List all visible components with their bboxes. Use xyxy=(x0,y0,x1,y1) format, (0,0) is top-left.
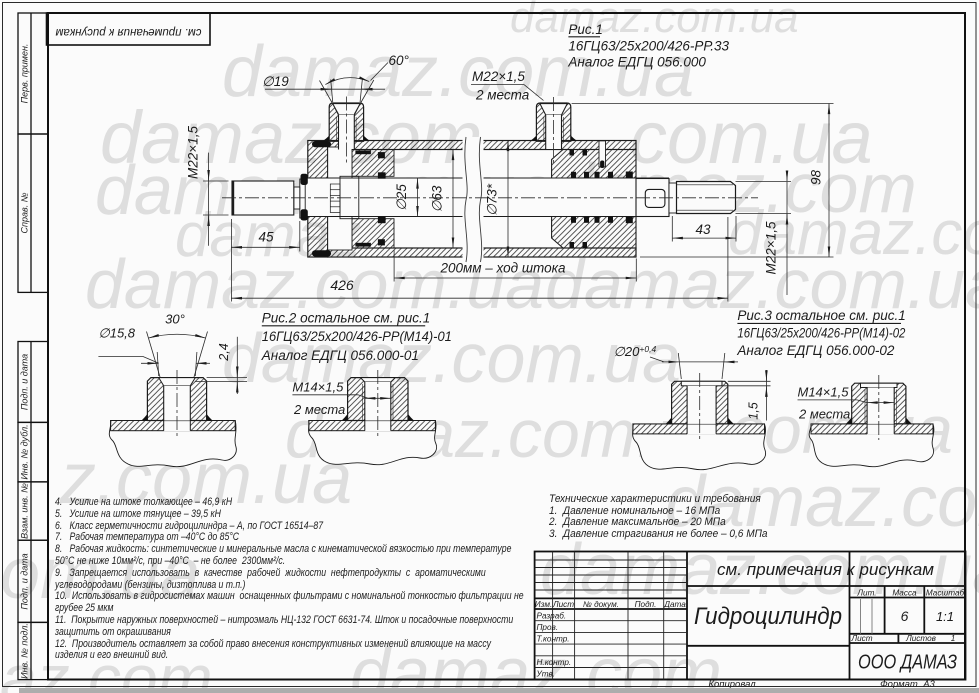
svg-text:Пров.: Пров. xyxy=(537,623,559,632)
svg-text:Лист: Лист xyxy=(552,600,574,609)
svg-text:Дата: Дата xyxy=(663,600,686,609)
svg-text:Аналог ЕДГЦ 056.000-01: Аналог ЕДГЦ 056.000-01 xyxy=(261,348,419,363)
svg-text:Взам. инв. №: Взам. инв. № xyxy=(20,483,30,539)
svg-text:∅73*: ∅73* xyxy=(485,183,500,216)
svg-text:M22×1,5: M22×1,5 xyxy=(186,126,201,179)
svg-text:2 места: 2 места xyxy=(475,88,530,103)
svg-text:см. примечания к рисункам: см. примечания к рисункам xyxy=(55,26,201,38)
svg-text:Утв.: Утв. xyxy=(536,670,556,679)
svg-text:Перв. примен.: Перв. примен. xyxy=(20,44,30,104)
svg-text:Подп.: Подп. xyxy=(635,600,657,609)
svg-text:M14×1,5: M14×1,5 xyxy=(292,380,344,395)
svg-text:Аналог ЕДГЦ 056.000: Аналог ЕДГЦ 056.000 xyxy=(567,55,706,70)
svg-text:16ГЦ63/25х200/426-РР(М14)-02: 16ГЦ63/25х200/426-РР(М14)-02 xyxy=(737,326,905,341)
svg-text:60°: 60° xyxy=(389,53,410,68)
svg-text:№ докум.: № докум. xyxy=(583,600,619,609)
svg-text:2 места: 2 места xyxy=(798,407,850,422)
svg-text:∅20+0,4: ∅20+0,4 xyxy=(614,344,657,359)
svg-text:Масса: Масса xyxy=(892,589,917,598)
svg-text:ООО ДАМАЗ: ООО ДАМАЗ xyxy=(858,652,957,674)
svg-text:Лист: Лист xyxy=(850,634,872,643)
svg-text:M22×1,5: M22×1,5 xyxy=(764,221,779,274)
svg-text:43: 43 xyxy=(695,222,711,237)
svg-text:16ГЦ63/25х200/426-РР(М14)-01: 16ГЦ63/25х200/426-РР(М14)-01 xyxy=(262,329,452,344)
svg-text:2 места: 2 места xyxy=(293,402,345,417)
svg-text:Лит.: Лит. xyxy=(856,589,876,598)
svg-text:1:1: 1:1 xyxy=(936,609,954,624)
svg-text:см. примечания к рисункам: см. примечания к рисункам xyxy=(717,560,934,579)
svg-text:Инв. № дубл.: Инв. № дубл. xyxy=(20,424,30,479)
svg-text:Т.контр.: Т.контр. xyxy=(537,635,570,644)
svg-text:Н.контр.: Н.контр. xyxy=(537,658,572,667)
svg-text:Рис.3 остальное см. рис.1: Рис.3 остальное см. рис.1 xyxy=(737,308,905,323)
svg-text:Подп. и дата: Подп. и дата xyxy=(20,553,30,609)
svg-text:Гидроцилиндр: Гидроцилиндр xyxy=(694,603,842,630)
svg-text:16ГЦ63/25х200/426-РР.33: 16ГЦ63/25х200/426-РР.33 xyxy=(568,39,729,54)
svg-text:Инв. № подл.: Инв. № подл. xyxy=(20,623,30,679)
svg-text:30°: 30° xyxy=(165,312,185,327)
svg-text:Разраб.: Разраб. xyxy=(537,612,567,621)
svg-text:∅63: ∅63 xyxy=(430,185,445,212)
svg-text:∅25: ∅25 xyxy=(394,184,409,211)
svg-text:M22×1,5: M22×1,5 xyxy=(472,69,525,84)
svg-text:200мм – ход штока: 200мм – ход штока xyxy=(439,261,566,276)
svg-text:∅19: ∅19 xyxy=(262,74,289,89)
svg-text:Масштаб: Масштаб xyxy=(926,589,965,598)
svg-text:Рис.1: Рис.1 xyxy=(568,22,603,37)
svg-text:Справ. №: Справ. № xyxy=(20,192,30,233)
svg-text:426: 426 xyxy=(330,277,354,293)
svg-text:∅15,8: ∅15,8 xyxy=(98,326,135,341)
svg-text:6: 6 xyxy=(901,608,909,624)
svg-text:98: 98 xyxy=(809,170,824,186)
svg-text:45: 45 xyxy=(258,230,274,245)
svg-text:1: 1 xyxy=(951,634,956,643)
svg-text:1,5: 1,5 xyxy=(747,402,761,419)
svg-text:Аналог ЕДГЦ 056.000-02: Аналог ЕДГЦ 056.000-02 xyxy=(736,343,895,358)
svg-text:Листов: Листов xyxy=(905,634,937,643)
svg-text:Рис.2 остальное см. рис.1: Рис.2 остальное см. рис.1 xyxy=(262,311,430,326)
svg-text:M14×1,5: M14×1,5 xyxy=(798,385,850,400)
svg-text:Изм.: Изм. xyxy=(535,600,552,609)
svg-text:Подп. и дата: Подп. и дата xyxy=(20,354,30,410)
svg-text:2,4: 2,4 xyxy=(217,343,231,361)
